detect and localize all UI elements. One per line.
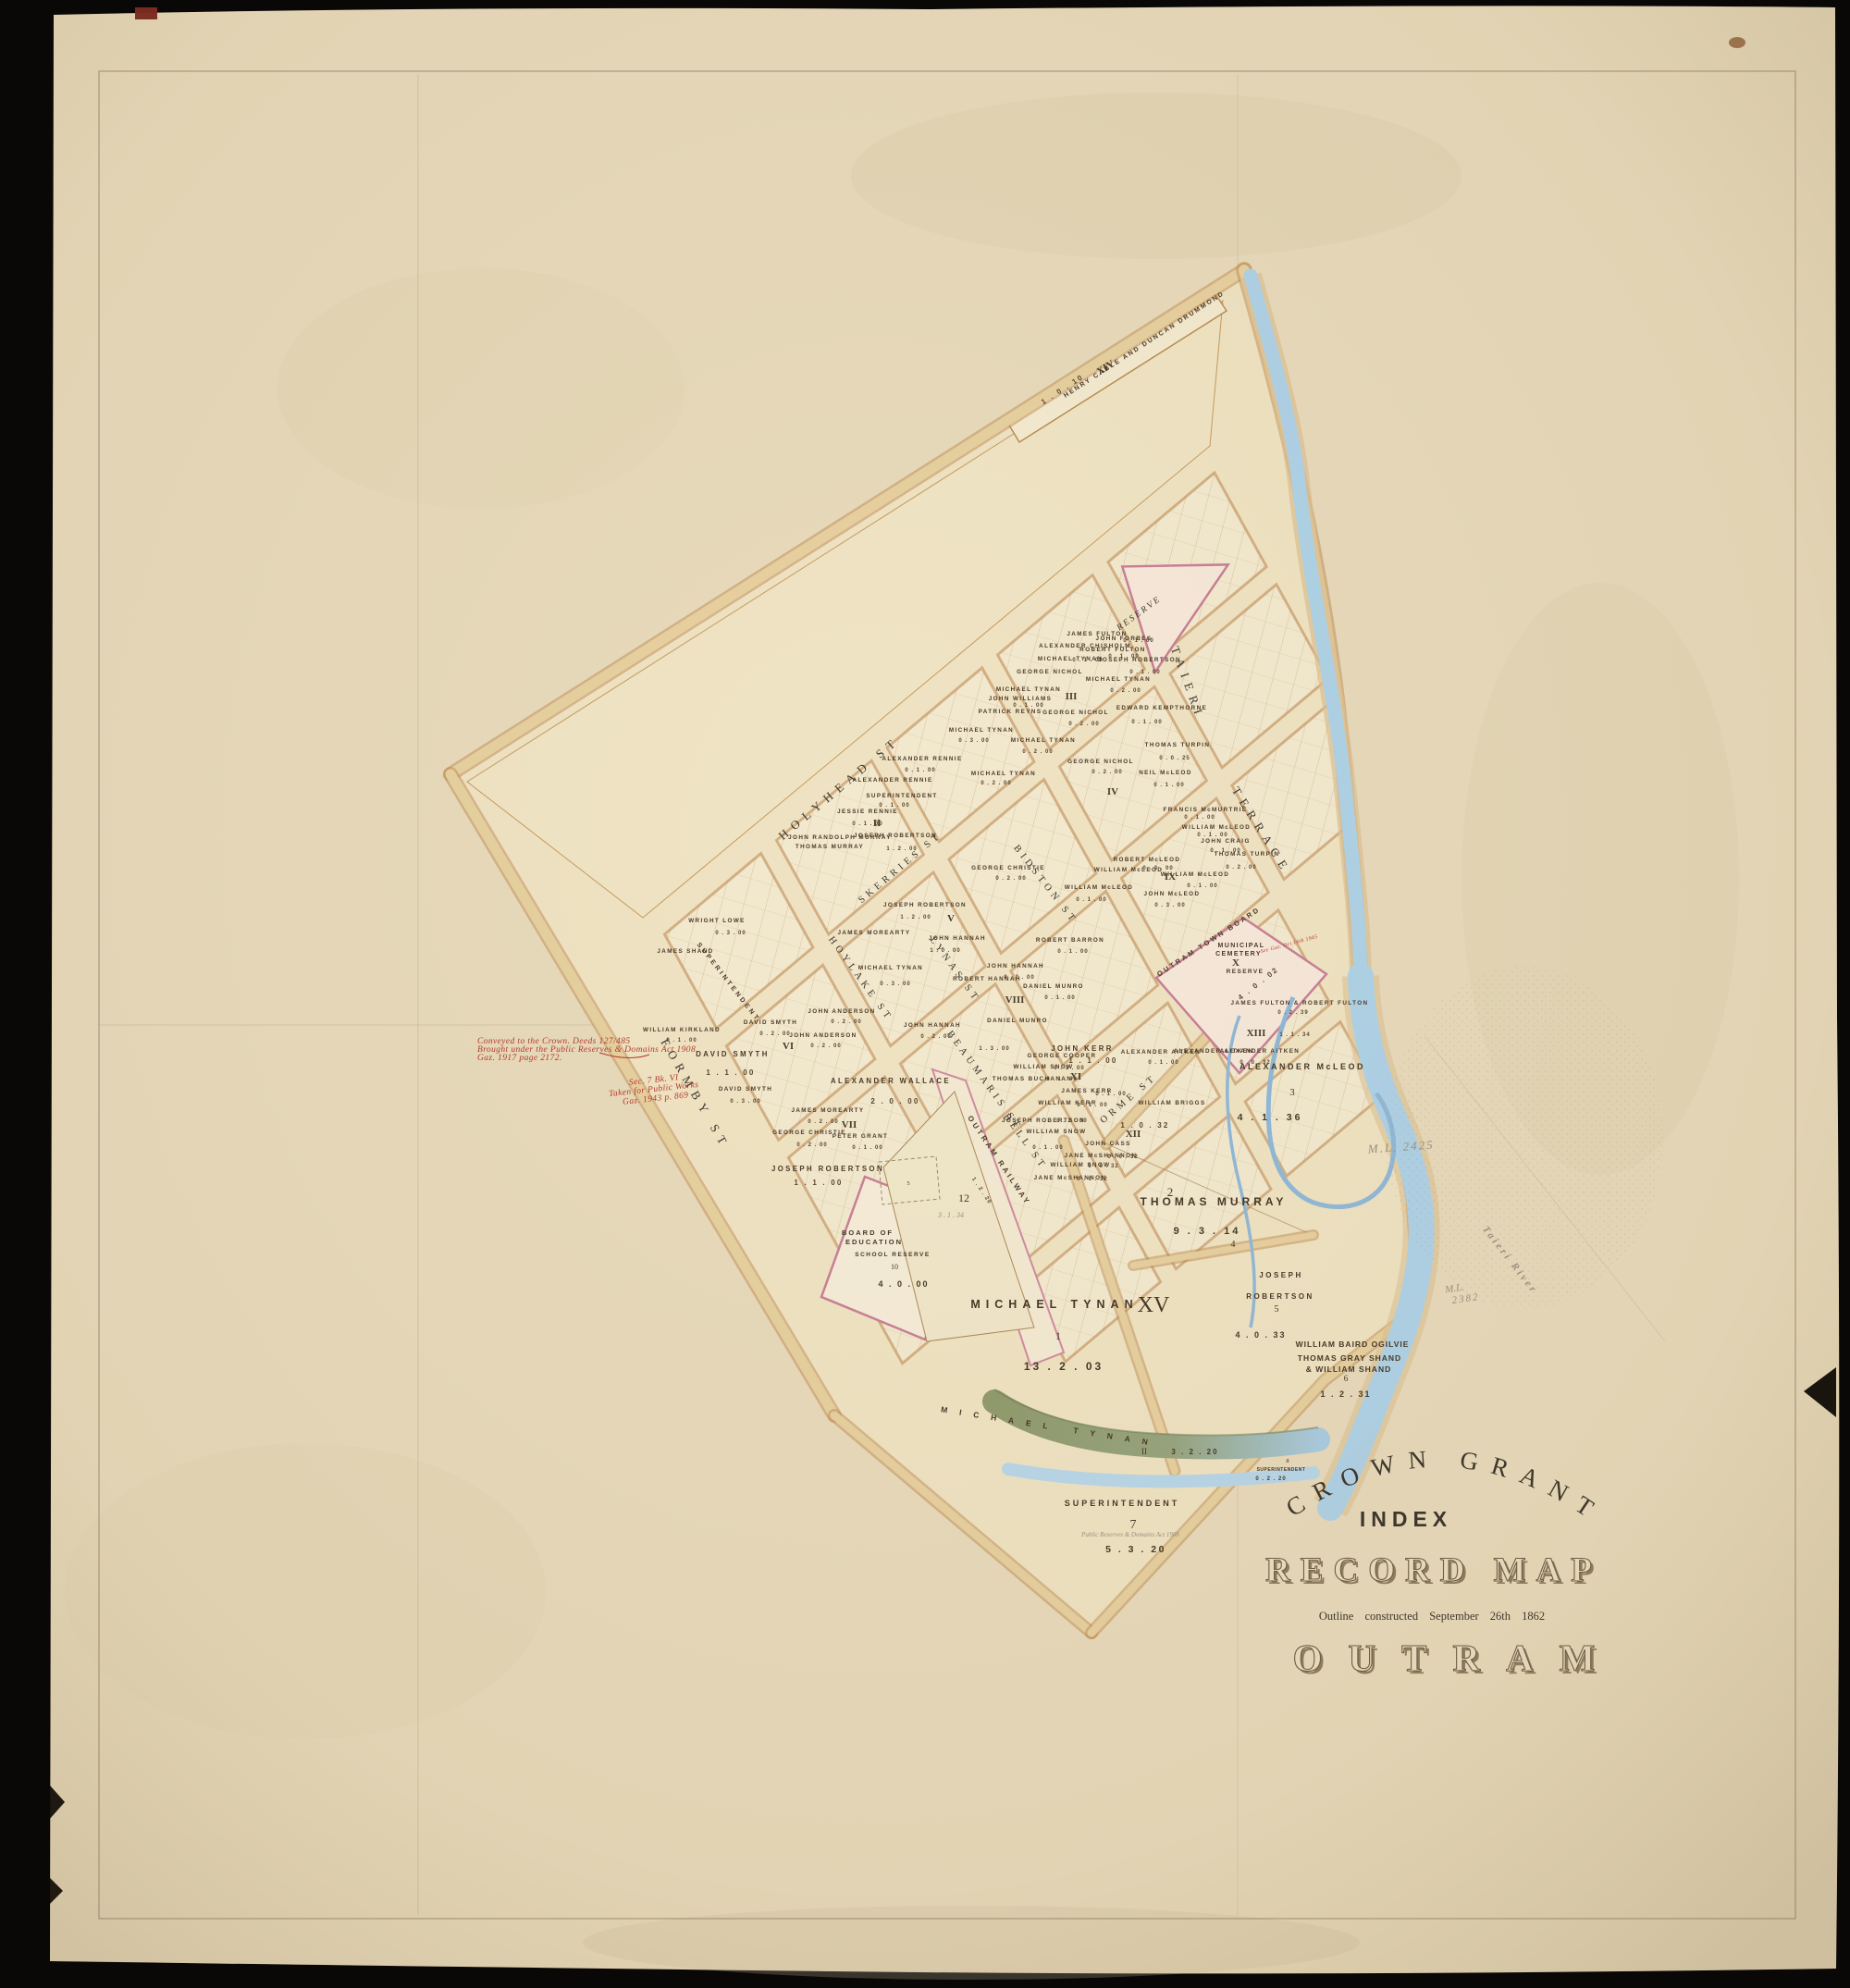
aging-vignette (50, 6, 1839, 1973)
scanned-map-sheet: HOLYHEAD ST SKERRIES ST BIDSTON ST HOYLA… (0, 0, 1850, 1988)
map-canvas: HOLYHEAD ST SKERRIES ST BIDSTON ST HOYLA… (0, 0, 1850, 1988)
